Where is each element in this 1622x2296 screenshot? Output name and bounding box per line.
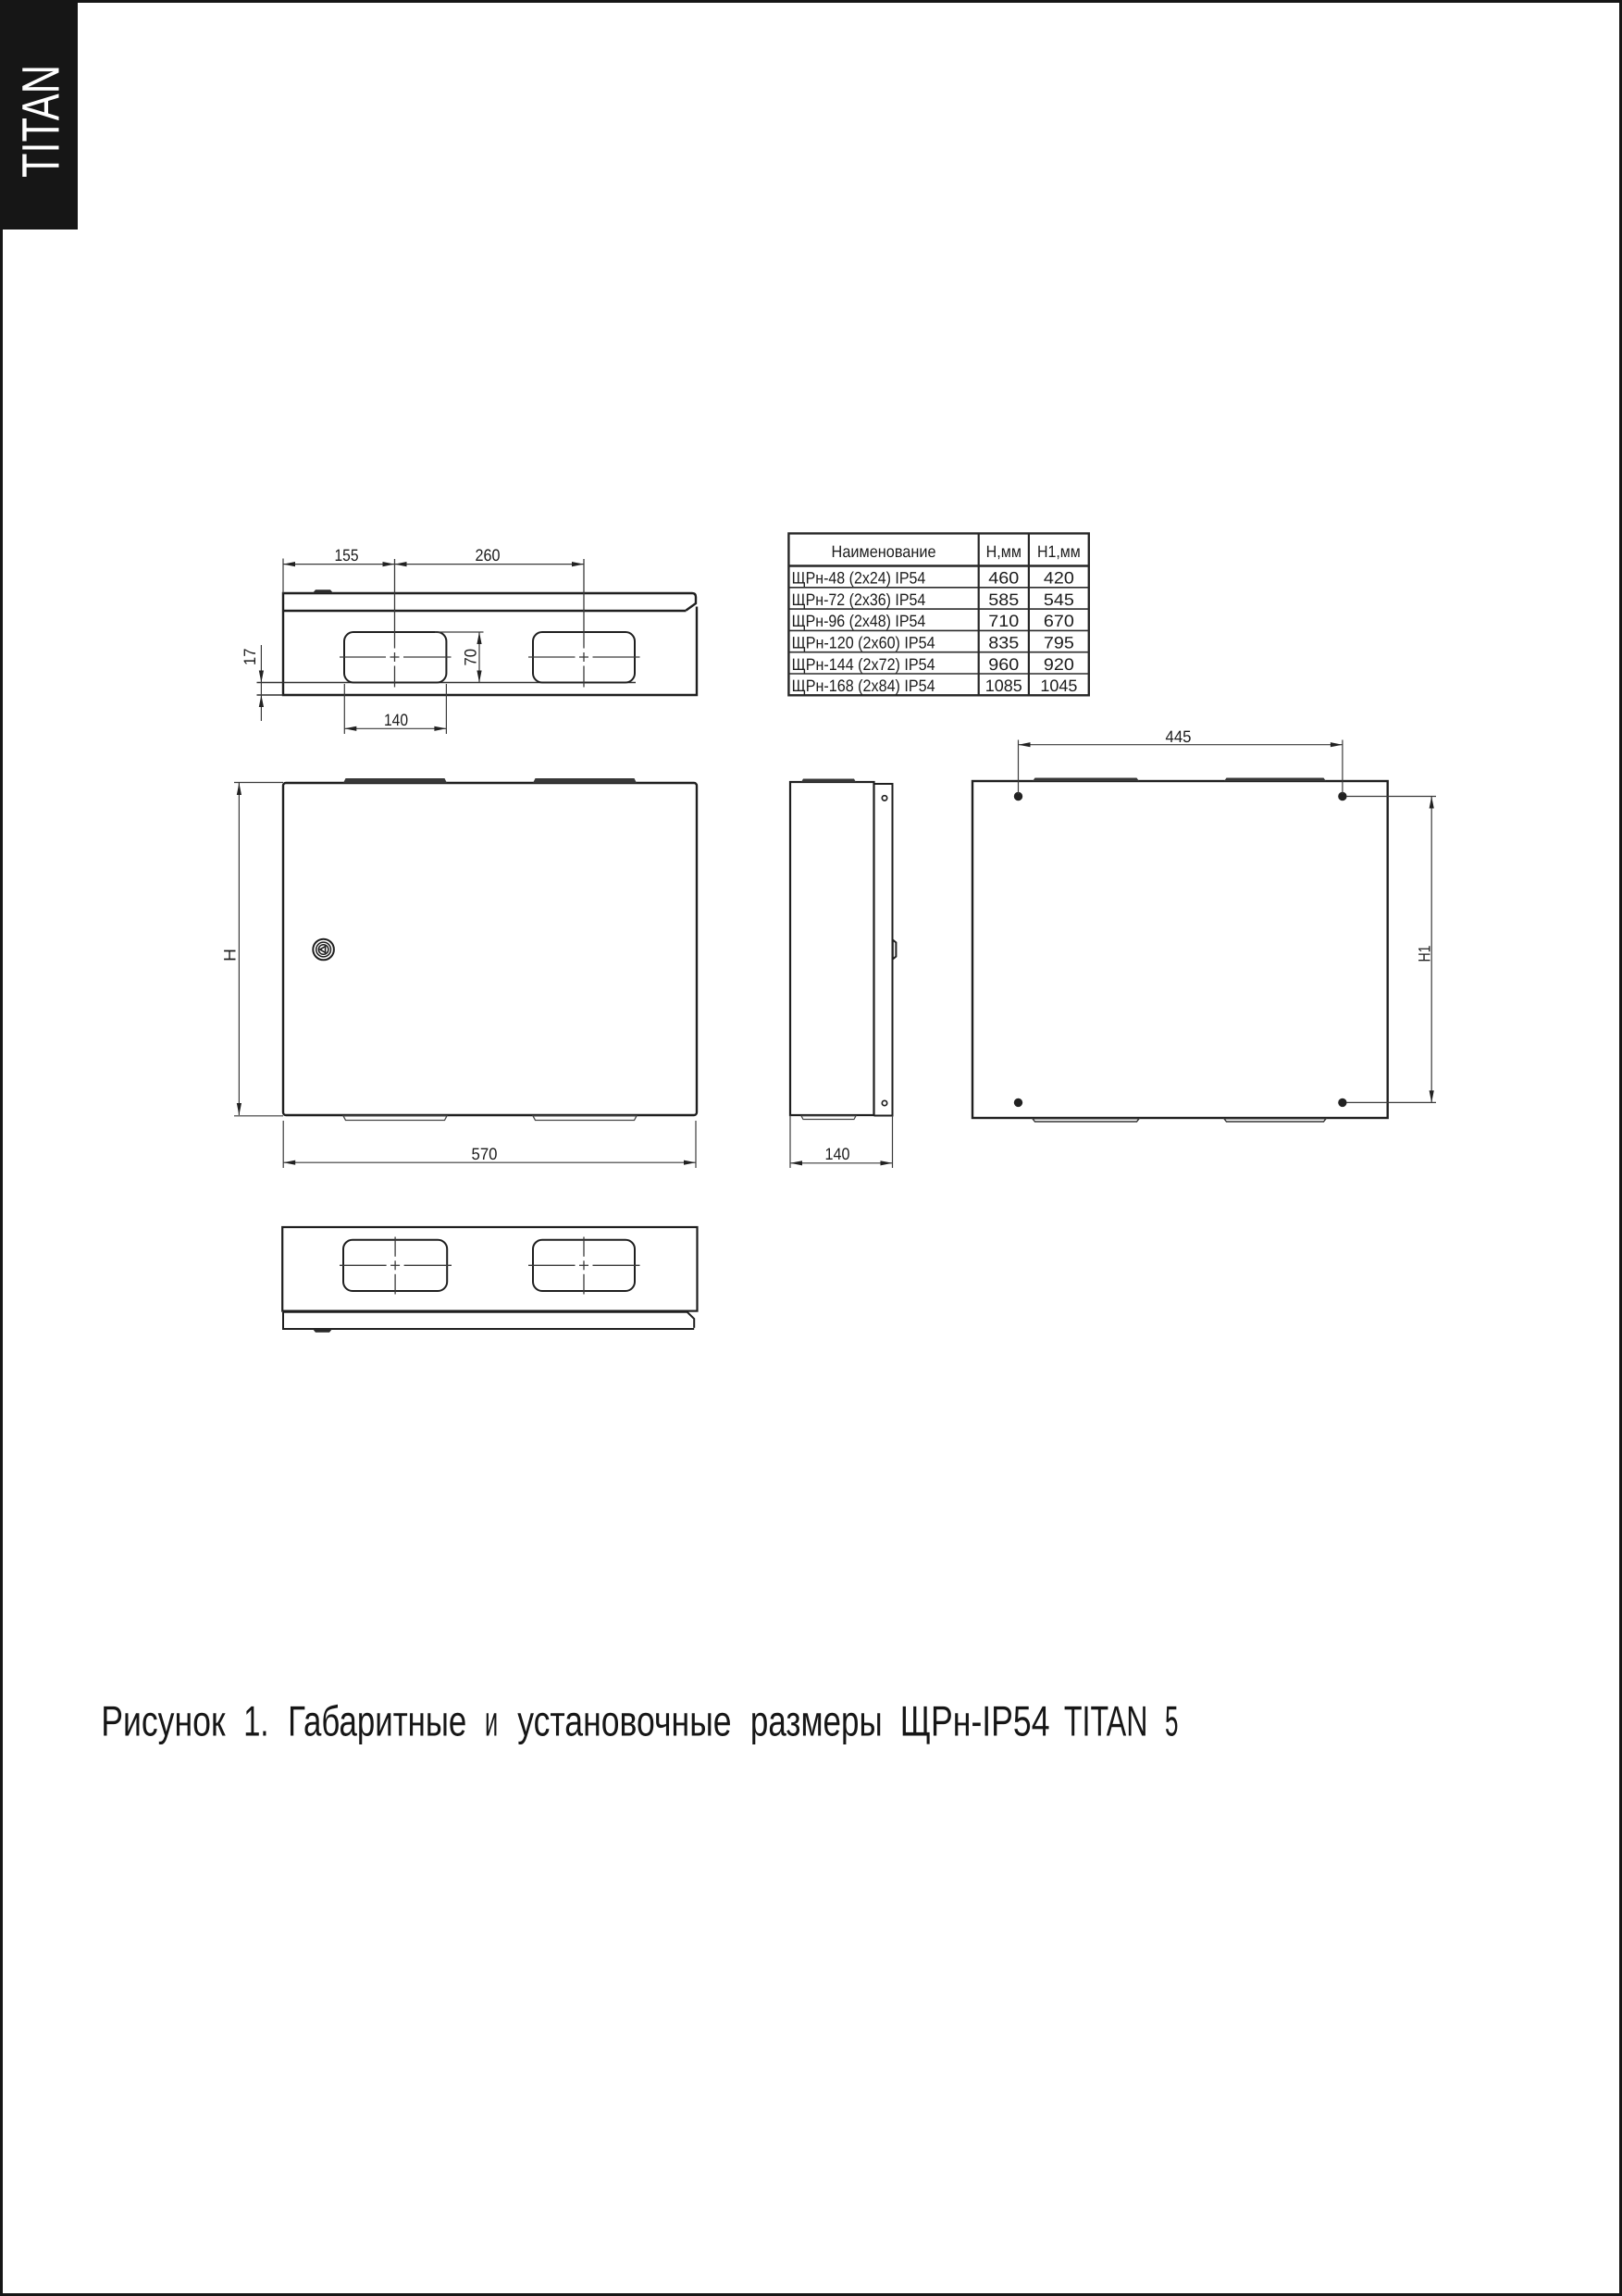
svg-text:460: 460 (988, 569, 1019, 588)
svg-text:140: 140 (825, 1145, 850, 1163)
svg-text:ЩРн-168 (2х84) IP54: ЩРн-168 (2х84) IP54 (792, 676, 935, 695)
svg-text:Рисунок: Рисунок (101, 1697, 226, 1745)
svg-text:Наименование: Наименование (832, 542, 936, 561)
svg-text:1.: 1. (243, 1697, 268, 1745)
svg-text:ЩРн-48 (2х24) IP54: ЩРн-48 (2х24) IP54 (792, 569, 926, 588)
svg-text:ЩРн-120 (2х60) IP54: ЩРн-120 (2х60) IP54 (792, 634, 935, 652)
svg-text:H: H (221, 949, 240, 962)
svg-text:H1: H1 (1416, 946, 1434, 962)
svg-text:420: 420 (1044, 569, 1074, 588)
svg-text:ЩРн-144 (2х72) IP54: ЩРн-144 (2х72) IP54 (792, 655, 935, 674)
svg-text:920: 920 (1044, 655, 1074, 674)
svg-text:размеры: размеры (750, 1697, 883, 1745)
svg-text:545: 545 (1044, 590, 1074, 609)
svg-text:ЩРн-96 (2х48) IP54: ЩРн-96 (2х48) IP54 (792, 612, 926, 630)
svg-text:70: 70 (462, 649, 480, 666)
svg-text:670: 670 (1044, 612, 1074, 630)
svg-text:17: 17 (241, 649, 259, 666)
svg-text:835: 835 (988, 634, 1019, 652)
svg-text:Н,мм: Н,мм (986, 542, 1021, 561)
svg-text:TITAN: TITAN (1064, 1697, 1148, 1745)
svg-text:1045: 1045 (1040, 676, 1077, 695)
svg-text:260: 260 (476, 546, 501, 565)
svg-text:570: 570 (472, 1145, 498, 1163)
svg-text:ЩРн-72 (2х36) IP54: ЩРн-72 (2х36) IP54 (792, 590, 926, 609)
svg-text:ЩРн-IP54: ЩРн-IP54 (900, 1697, 1050, 1745)
svg-text:установочные: установочные (517, 1697, 731, 1745)
svg-text:960: 960 (988, 655, 1019, 674)
svg-text:5: 5 (1165, 1697, 1179, 1745)
svg-text:795: 795 (1044, 634, 1074, 652)
svg-text:155: 155 (335, 546, 359, 565)
svg-text:710: 710 (988, 612, 1019, 630)
svg-text:585: 585 (988, 590, 1019, 609)
svg-text:Габаритные: Габаритные (288, 1697, 466, 1745)
svg-text:Н1,мм: Н1,мм (1037, 542, 1081, 561)
svg-text:1085: 1085 (985, 676, 1022, 695)
svg-text:TITAN: TITAN (11, 65, 70, 178)
svg-text:445: 445 (1166, 727, 1192, 746)
svg-text:и: и (485, 1697, 498, 1745)
svg-text:140: 140 (384, 711, 408, 729)
